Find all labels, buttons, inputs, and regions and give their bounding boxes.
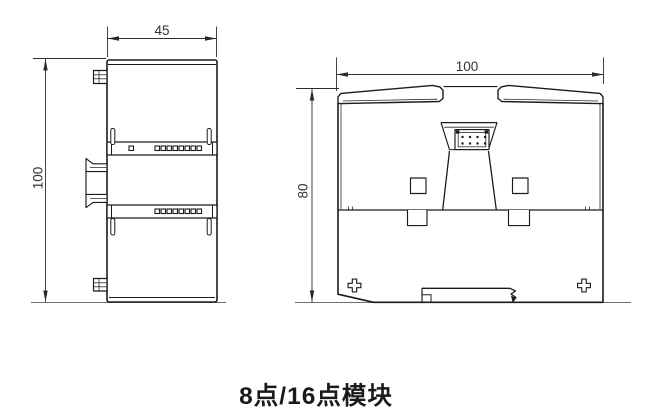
rear-height-label: 80 (296, 183, 311, 198)
rear-view: 100 80 (295, 58, 631, 303)
module-body-outline (107, 60, 217, 302)
side-height-dimension: 100 (31, 59, 107, 303)
drawing-caption: 8点/16点模块 (160, 377, 472, 412)
arrow-left-icon (108, 36, 120, 40)
arrow-left-icon (337, 72, 349, 76)
arrow-up-icon (310, 89, 314, 101)
rear-width-dimension: 100 (337, 58, 604, 92)
terminal-cover-right (498, 85, 603, 103)
dimension-drawing-page: 45 100 (0, 0, 661, 419)
side-width-label: 45 (154, 23, 169, 38)
top-mount-tab (94, 71, 108, 84)
side-view: 45 100 (31, 23, 227, 303)
side-width-dimension: 45 (108, 23, 217, 57)
arrow-right-icon (592, 72, 604, 76)
arrow-right-icon (205, 36, 217, 40)
bottom-mount-tab (94, 279, 108, 292)
bus-connector (86, 159, 107, 208)
arrow-down-icon (310, 291, 314, 303)
terminal-band-bottom (107, 205, 217, 218)
rear-width-label: 100 (456, 59, 479, 74)
mount-square-left (411, 178, 427, 194)
mount-square-right (513, 178, 529, 194)
lower-tab-right (509, 210, 530, 226)
lower-tab-left (408, 210, 428, 226)
arrow-down-icon (43, 291, 47, 303)
technical-drawing: 45 100 (0, 0, 661, 419)
rear-height-dimension: 80 (296, 89, 340, 303)
side-height-label: 100 (31, 167, 46, 190)
terminal-cover-left (338, 85, 443, 103)
terminal-band-top (107, 142, 217, 155)
arrow-up-icon (43, 59, 47, 71)
